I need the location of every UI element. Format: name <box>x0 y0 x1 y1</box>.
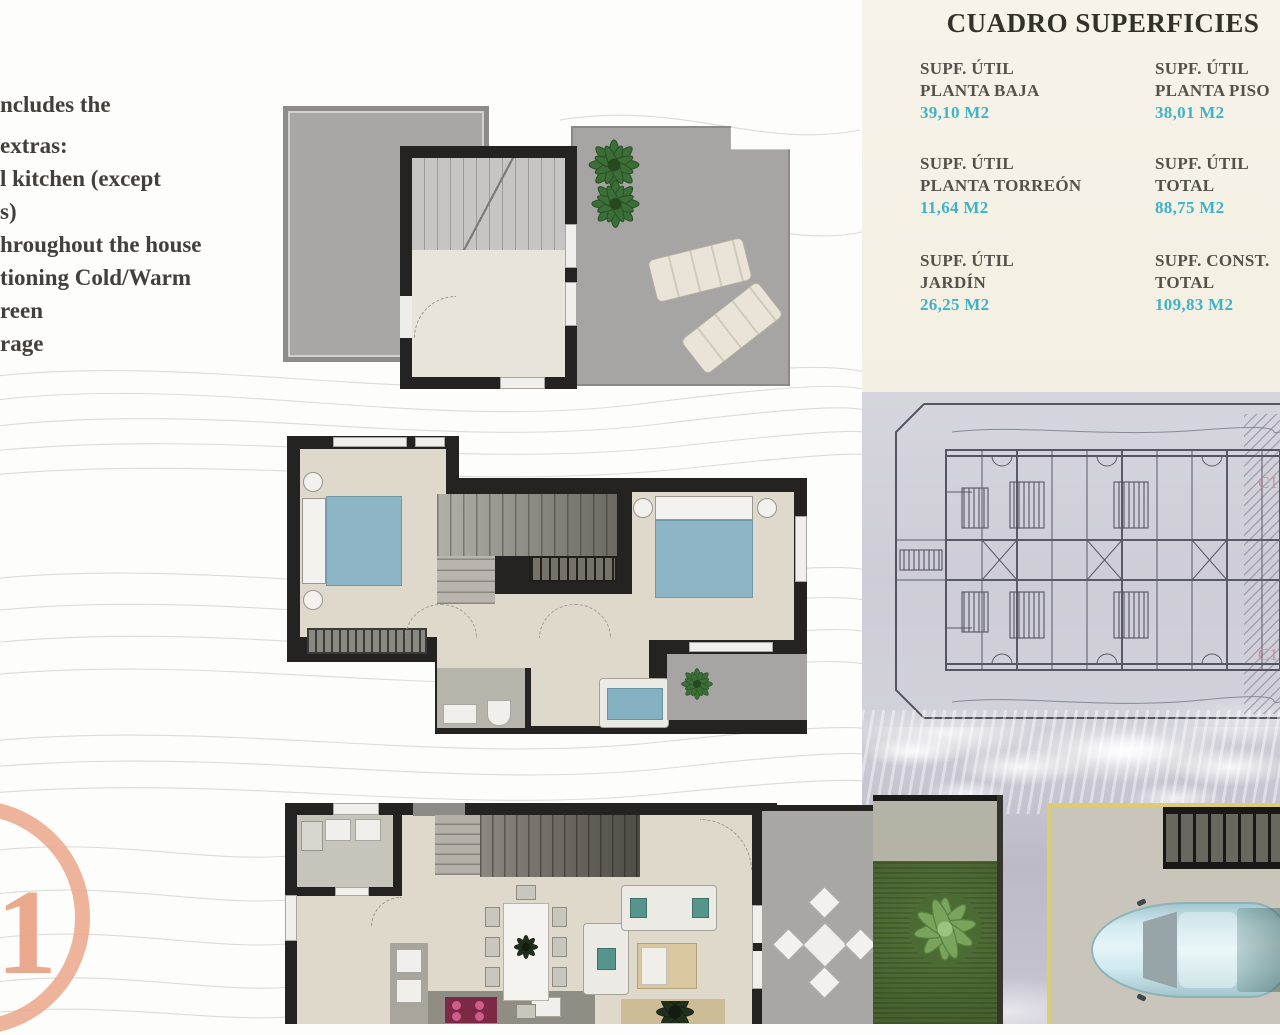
garden-concrete <box>873 801 1003 861</box>
stairs-first-steps <box>435 815 480 875</box>
terrace-plant <box>585 136 643 240</box>
surface-value: 88,75 M2 <box>1155 197 1249 219</box>
garden-bush <box>903 887 987 971</box>
bathroom-sink <box>443 704 477 724</box>
car-mirror <box>1136 898 1146 906</box>
ground-floor-plan <box>285 795 1005 1024</box>
surfaces-table-panel: CUADRO SUPERFICIES SUPF. ÚTIL PLANTA BAJ… <box>862 0 1280 392</box>
sink-unit <box>355 819 381 841</box>
bed <box>655 520 753 598</box>
car-mirror <box>1136 993 1146 1001</box>
surface-entry-const-total: SUPF. CONST. TOTAL 109,83 M2 <box>1155 250 1270 316</box>
surface-entry-planta-torreon: SUPF. ÚTIL PLANTA TORREÓN 11,64 M2 <box>920 153 1081 219</box>
chair <box>516 885 536 900</box>
nightstand <box>757 498 777 518</box>
notes-line: ncludes the <box>0 88 262 121</box>
surface-label: PLANTA BAJA <box>920 80 1040 102</box>
chair <box>485 967 500 987</box>
chair <box>552 967 567 987</box>
torreon-room <box>400 146 577 389</box>
car-rear-shading <box>1237 908 1280 992</box>
cooktop <box>445 997 497 1023</box>
notes-line: l kitchen (except <box>0 162 262 195</box>
logo-number: 1 <box>0 872 57 994</box>
stairs <box>437 494 617 556</box>
chair <box>485 937 500 957</box>
surface-value: 38,01 M2 <box>1155 102 1270 124</box>
notes-line: rage <box>0 327 262 360</box>
torreon-stairs <box>412 158 565 250</box>
surface-value: 39,10 M2 <box>920 102 1040 124</box>
coffee-table-tray <box>641 947 667 985</box>
surface-label: SUPF. ÚTIL <box>1155 153 1249 175</box>
window <box>795 516 807 582</box>
surface-label: JARDÍN <box>920 272 1014 294</box>
exterior-stairs <box>1163 807 1280 869</box>
pillow <box>692 898 709 918</box>
torreon-floor <box>412 158 565 377</box>
chair <box>516 1004 536 1019</box>
torreon-roof-floor-plan <box>283 96 795 398</box>
window <box>415 437 445 447</box>
stair-railing <box>529 556 617 582</box>
car-roof <box>1179 912 1237 988</box>
rug-plant <box>653 1001 697 1023</box>
door-opening <box>400 296 412 338</box>
window <box>565 282 577 326</box>
shower <box>301 821 323 851</box>
bed <box>326 496 402 586</box>
surface-label: SUPF. ÚTIL <box>920 250 1014 272</box>
bed-pillows <box>655 496 753 520</box>
surface-label: TOTAL <box>1155 175 1249 197</box>
surface-entry-planta-piso: SUPF. ÚTIL PLANTA PISO 38,01 M2 <box>1155 58 1270 124</box>
parking-plot <box>1047 803 1280 1024</box>
armchair <box>583 923 629 995</box>
surface-label: SUPF. ÚTIL <box>1155 58 1270 80</box>
surface-label: SUPF. CONST. <box>1155 250 1270 272</box>
surface-label: TOTAL <box>1155 272 1270 294</box>
oven <box>396 979 422 1003</box>
surface-entry-planta-baja: SUPF. ÚTIL PLANTA BAJA 39,10 M2 <box>920 58 1040 124</box>
surface-value: 11,64 M2 <box>920 197 1081 219</box>
site-plan-blueprint: C1 C1 <box>862 392 1280 727</box>
toilet <box>487 700 511 726</box>
sofa <box>599 678 669 728</box>
notes-line: s) <box>0 195 262 228</box>
surface-label: SUPF. ÚTIL <box>920 153 1081 175</box>
nightstand <box>303 590 323 610</box>
window <box>333 803 379 815</box>
car-windshield <box>1143 910 1177 990</box>
surface-value: 26,25 M2 <box>920 294 1014 316</box>
bed-pillows <box>302 498 326 584</box>
notes-line: hroughout the house <box>0 228 262 261</box>
parked-car <box>1091 902 1280 998</box>
stairs-lower-flight <box>437 556 495 604</box>
surface-value: 109,83 M2 <box>1155 294 1270 316</box>
fridge <box>396 949 422 973</box>
notes-line: tioning Cold/Warm <box>0 261 262 294</box>
window <box>333 437 407 447</box>
sofa-cushions <box>607 688 663 720</box>
first-floor-plan <box>287 436 807 736</box>
surface-entry-jardin: SUPF. ÚTIL JARDÍN 26,25 M2 <box>920 250 1014 316</box>
notes-line: reen <box>0 294 262 327</box>
site-plan-unit-label: C1 <box>1258 473 1278 492</box>
chair <box>552 907 567 927</box>
window <box>689 642 773 652</box>
surface-entry-util-total: SUPF. ÚTIL TOTAL 88,75 M2 <box>1155 153 1249 219</box>
chair <box>552 937 567 957</box>
nightstand <box>303 472 323 492</box>
sofa <box>621 885 717 931</box>
chair <box>485 907 500 927</box>
balcony-plant <box>679 666 715 702</box>
door-opening <box>335 887 369 896</box>
washer <box>325 819 351 841</box>
surface-label: PLANTA TORREÓN <box>920 175 1081 197</box>
stairs <box>480 815 640 877</box>
pillow <box>597 948 616 970</box>
window <box>565 224 577 268</box>
surfaces-table-title: CUADRO SUPERFICIES <box>862 8 1280 39</box>
window <box>500 377 545 389</box>
surface-label: PLANTA PISO <box>1155 80 1270 102</box>
included-extras-notes: ncludes the extras: l kitchen (except s)… <box>0 88 262 360</box>
pillow <box>630 898 647 918</box>
table-centerpiece-plant <box>512 933 540 961</box>
garden <box>873 795 1003 1024</box>
window <box>285 895 297 941</box>
site-plan-unit-label: C1 <box>1258 645 1278 664</box>
surface-label: SUPF. ÚTIL <box>920 58 1040 80</box>
coffee-table <box>637 943 697 989</box>
garden-right-wall <box>997 795 1003 1024</box>
notes-line: extras: <box>0 129 262 162</box>
nightstand <box>633 498 653 518</box>
